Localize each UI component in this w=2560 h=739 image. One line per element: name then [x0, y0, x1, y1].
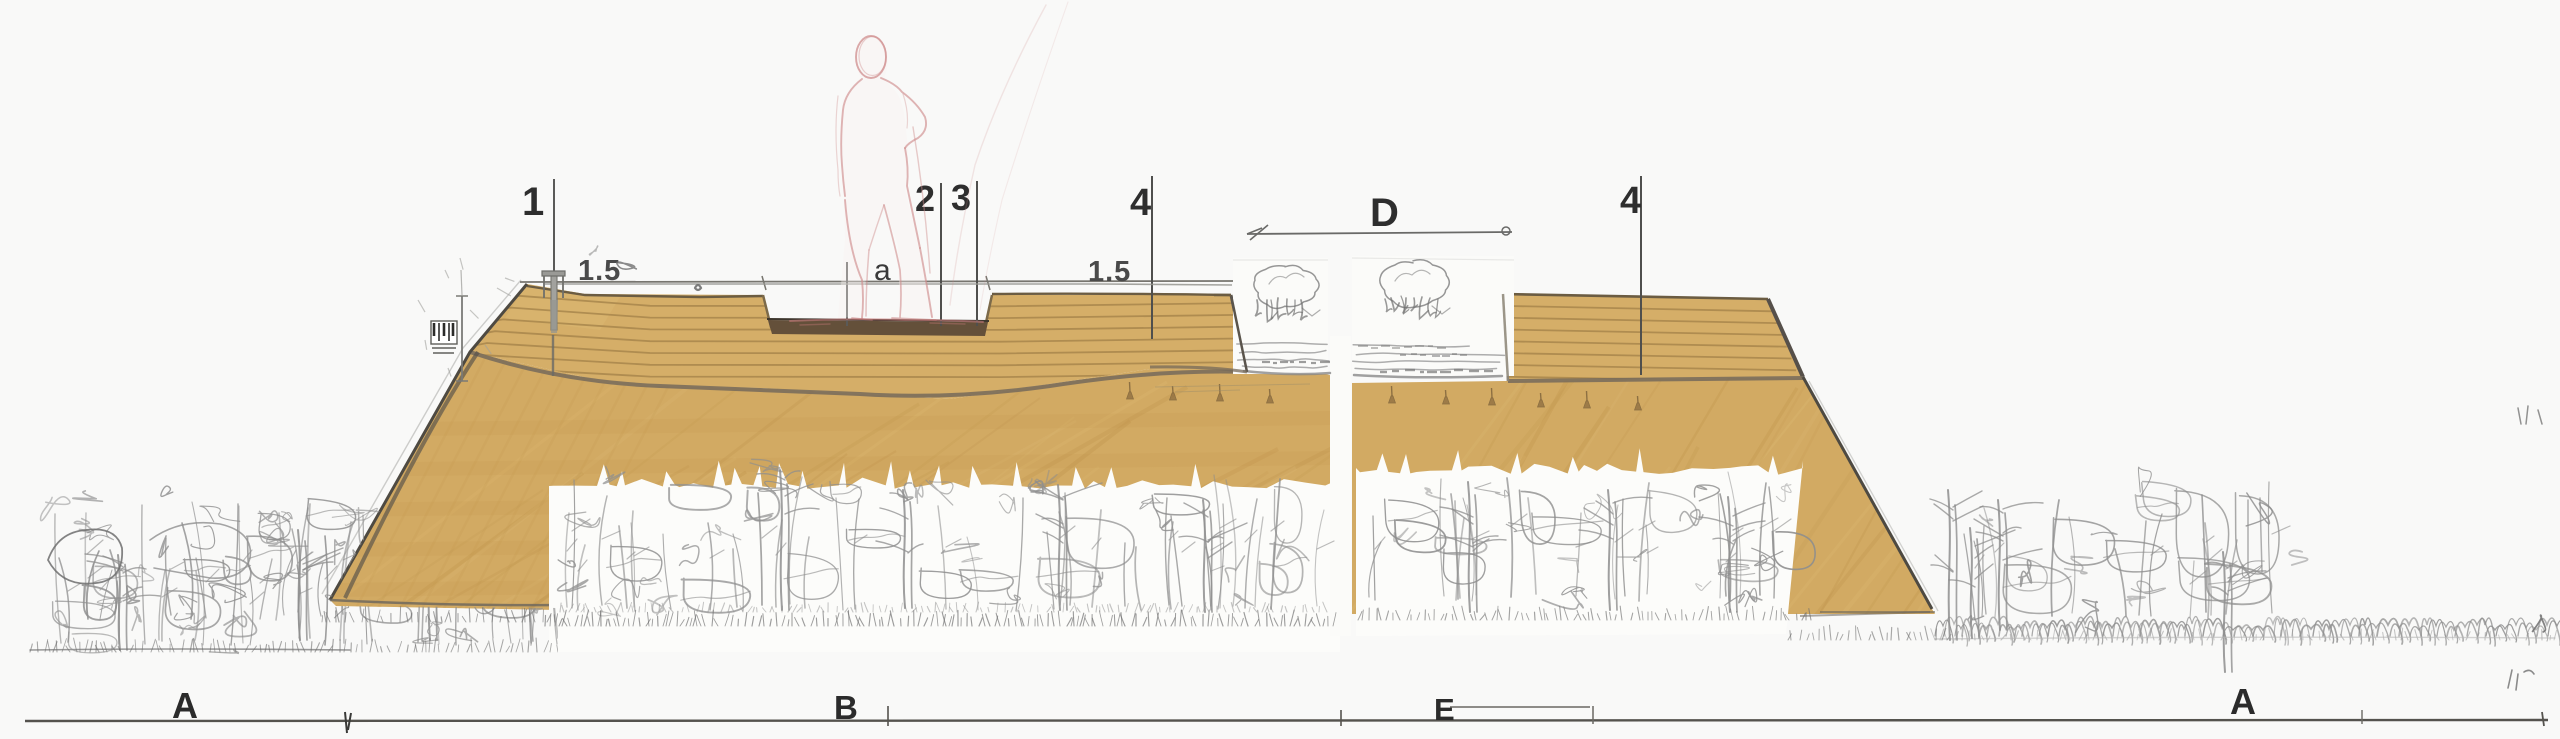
svg-text:B: B — [834, 689, 858, 726]
svg-text:4: 4 — [1130, 182, 1151, 224]
svg-text:4: 4 — [1620, 180, 1641, 222]
svg-text:a: a — [874, 254, 891, 287]
svg-text:1.5: 1.5 — [578, 255, 621, 287]
svg-text:1: 1 — [522, 180, 544, 224]
svg-text:A: A — [172, 685, 198, 726]
svg-text:E: E — [1434, 692, 1455, 727]
svg-text:D: D — [1370, 191, 1399, 235]
svg-text:A: A — [2230, 681, 2256, 722]
